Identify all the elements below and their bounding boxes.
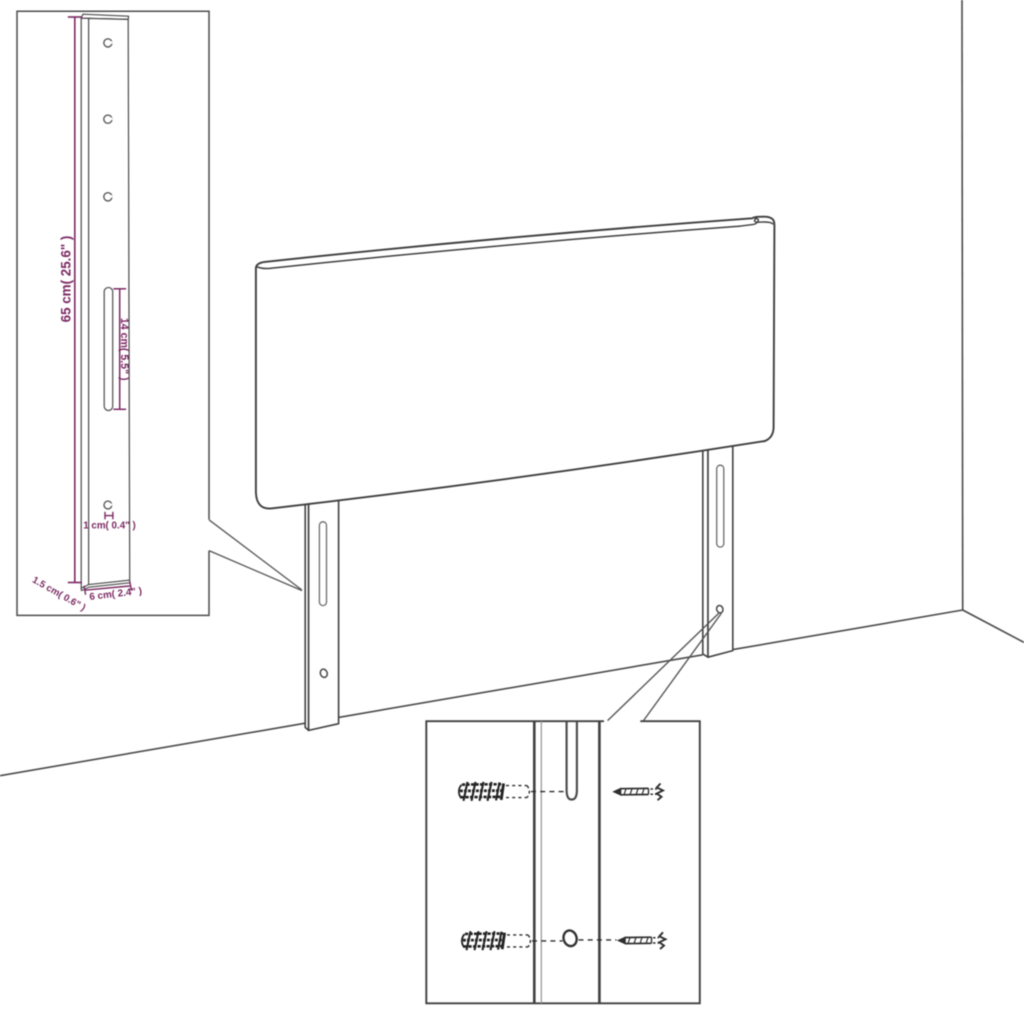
svg-text:65 cm( 25.6" ): 65 cm( 25.6" ) [58,236,73,323]
svg-text:14 cm( 5.5" ): 14 cm( 5.5" ) [118,318,130,381]
svg-text:1 cm( 0.4" ): 1 cm( 0.4" ) [83,521,136,532]
